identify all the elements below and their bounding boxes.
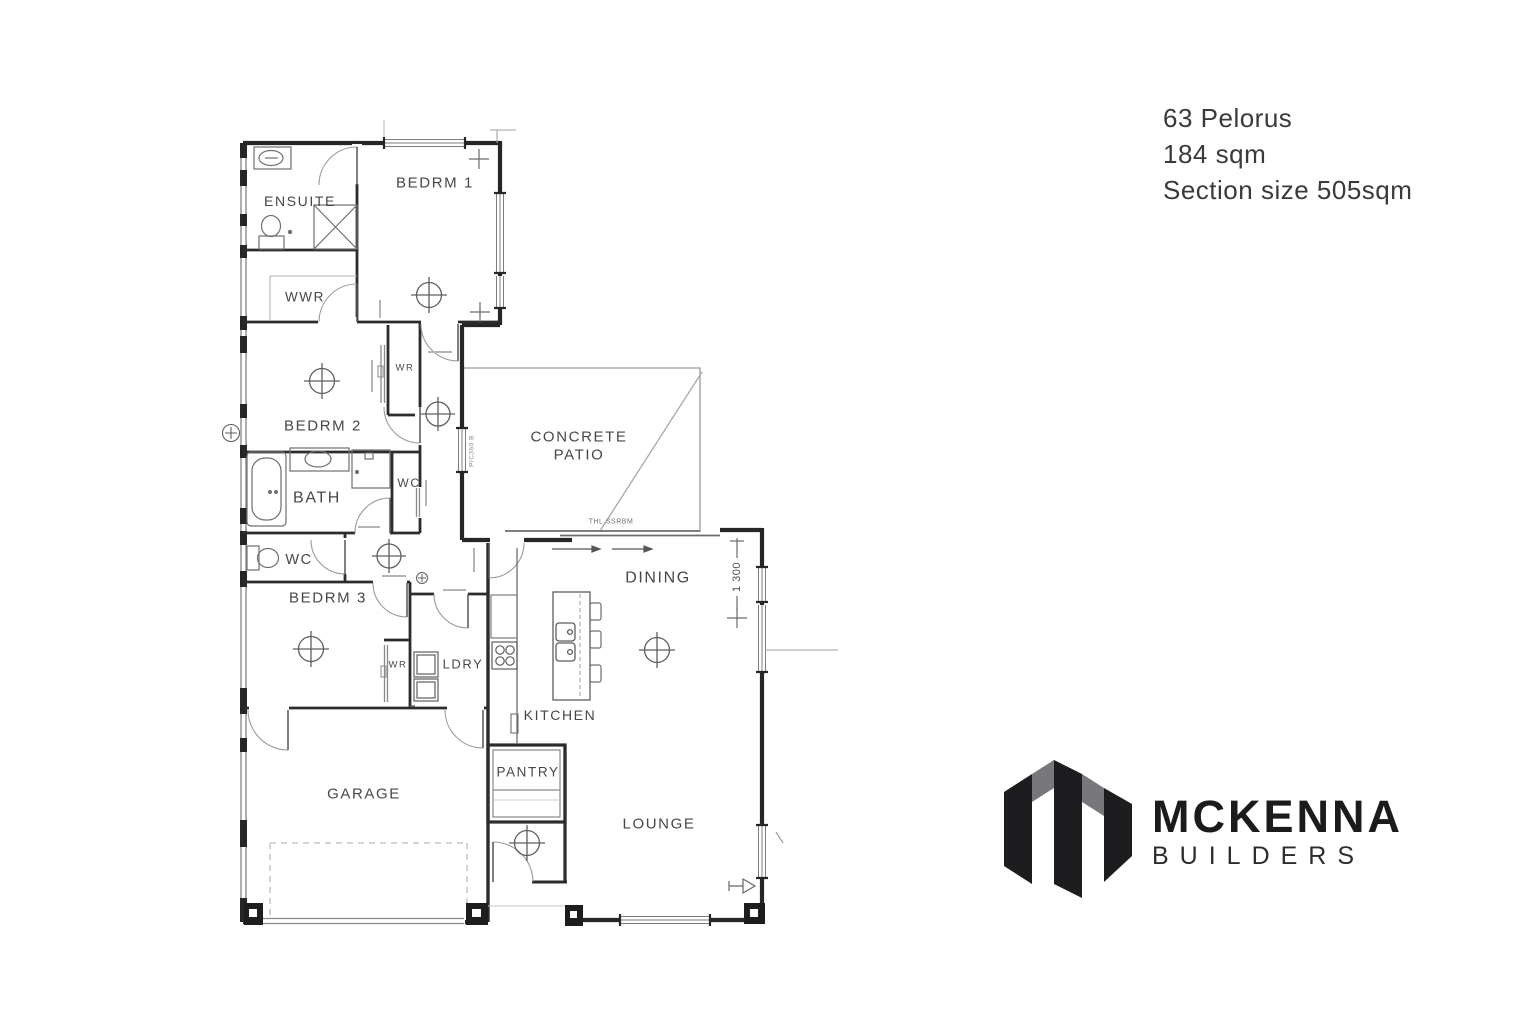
info-address: 63 Pelorus (1163, 100, 1412, 136)
garage-parking-outline (270, 843, 467, 915)
pantry-shelves (493, 790, 560, 800)
room-label-kitchen: KITCHEN (524, 707, 597, 723)
mckenna-logo-icon (1002, 752, 1134, 900)
entry-arrow (729, 879, 755, 893)
light-small (417, 573, 428, 584)
room-label-wwr: WWR (285, 290, 325, 305)
doors (248, 147, 533, 882)
room-label-pantry: PANTRY (496, 765, 559, 780)
light-bedrm2 (304, 363, 340, 399)
bath-shower (352, 450, 390, 488)
light-bedrm3 (293, 631, 329, 667)
annotation-dim-1300: 1 300 (731, 562, 743, 592)
info-panel: 63 Pelorus 184 sqm Section size 505sqm (1163, 100, 1412, 208)
room-labels: ENSUITEBEDRM 1WWRBEDRM 2WRBATHWCWCBEDRM … (264, 174, 695, 832)
logo-tagline: BUILDERS (1152, 842, 1403, 871)
room-label-patio-line1: CONCRETE (531, 428, 628, 445)
room-label-bedrm3: BEDRM 3 (289, 589, 367, 606)
room-label-bedrm1: BEDRM 1 (396, 174, 474, 191)
ensuite-vanity (254, 147, 291, 169)
room-label-bedrm2: BEDRM 2 (284, 417, 362, 434)
page: ENSUITEBEDRM 1WWRBEDRM 2WRBATHWCWCBEDRM … (0, 0, 1536, 1024)
ensuite-shower (314, 205, 357, 249)
logo-brand: MCKENNA (1152, 794, 1403, 839)
annotation-window-code: PIC360 B (468, 435, 475, 467)
plan-annotations: THL.SSRBMPIC360 B1 300 (468, 435, 743, 592)
closet-sliders (378, 345, 420, 702)
room-label-wr-bedrm2: WR (395, 362, 414, 373)
room-label-lounge: LOUNGE (623, 815, 696, 832)
bathtub (247, 452, 286, 526)
info-floor-area: 184 sqm (1163, 136, 1412, 172)
light-bedrm1 (411, 277, 447, 313)
room-label-wc-2: WC (285, 552, 312, 568)
pantry-walls (488, 745, 565, 822)
room-label-ensuite: ENSUITE (264, 193, 336, 209)
ensuite-toilet (259, 216, 292, 250)
reference-lines (490, 130, 838, 843)
annotation-slider-code: THL.SSRBM (589, 518, 634, 525)
room-label-patio-line2: PATIO (554, 446, 605, 463)
light-dining (639, 632, 675, 668)
room-label-garage: GARAGE (327, 785, 401, 802)
room-label-ldry: LDRY (443, 657, 484, 672)
ceiling-light-symbols (223, 277, 676, 861)
light-exterior (223, 425, 240, 442)
kitchen-island (553, 592, 590, 700)
room-label-wc-1: WC (397, 476, 420, 490)
cooktop (492, 642, 517, 669)
room-label-dining: DINING (625, 570, 691, 587)
room-label-wr-bedrm3: WR (388, 659, 407, 670)
laundry-machines (410, 652, 438, 706)
interior-walls (243, 143, 567, 922)
light-entry (509, 825, 545, 861)
logo: MCKENNA BUILDERS (1002, 752, 1403, 900)
light-hall-1 (421, 397, 455, 431)
room-label-bath: BATH (293, 490, 341, 507)
light-hall-2 (372, 539, 406, 573)
wc-toilet (247, 546, 279, 570)
island-stools (590, 603, 601, 682)
info-section-size: Section size 505sqm (1163, 172, 1412, 208)
logo-text: MCKENNA BUILDERS (1152, 794, 1403, 871)
